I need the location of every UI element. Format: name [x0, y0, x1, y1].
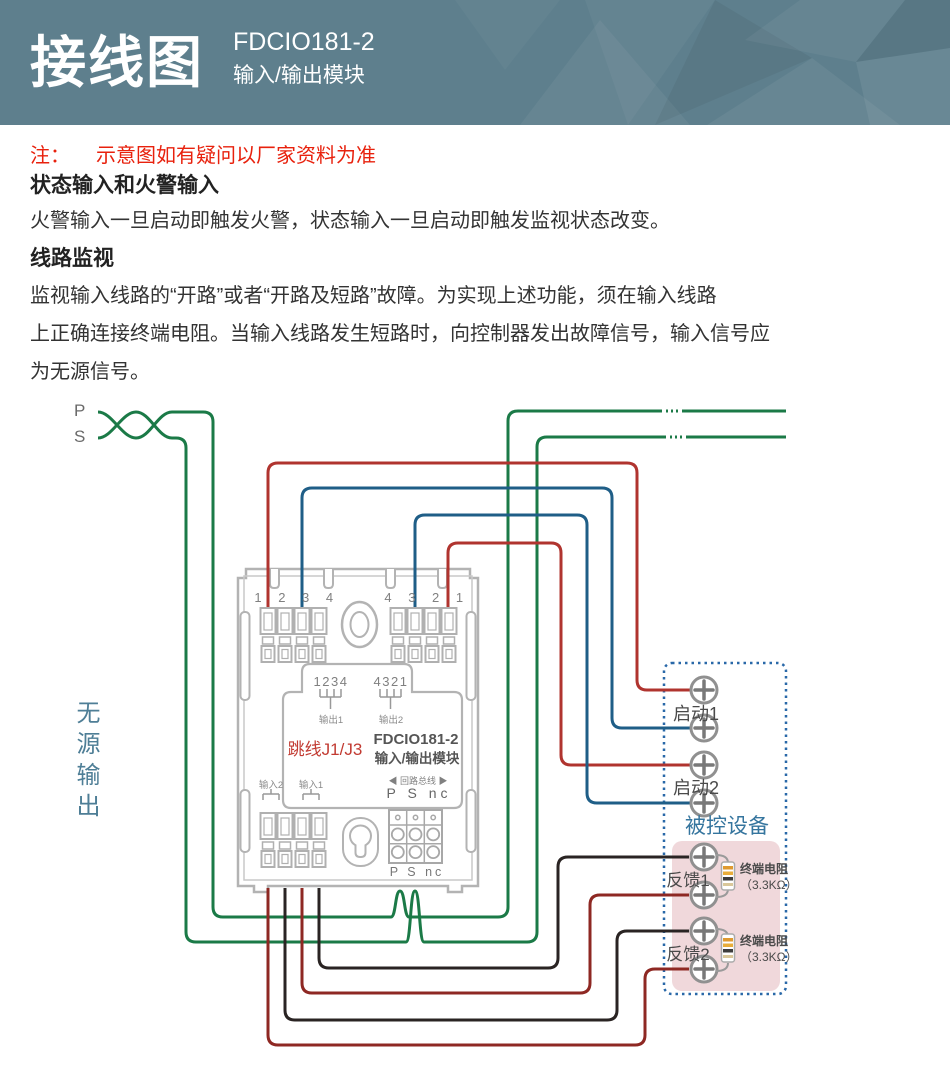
section2-line2: 上正确连接终端电阻。当输入线路发生短路时，向控制器发出故障信号，输入信号应 [30, 317, 770, 346]
disclaimer-note: 注：示意图如有疑问以厂家资料为准 [30, 139, 376, 168]
section1-title: 状态输入和火警输入 [30, 169, 219, 199]
loop-terminal-grid [389, 810, 442, 863]
top-right-terminal-numbers: 4 3 2 1 [384, 590, 469, 605]
start1-negative-wire [302, 488, 691, 728]
feedback2-label: 反馈2 [666, 940, 709, 965]
start1-positive-wire [268, 463, 691, 690]
section2-title: 线路监视 [30, 242, 114, 272]
feedback1-signal-wire [319, 857, 689, 968]
page-title: 接线图 [30, 18, 204, 99]
grid-terminal-labels: P S nc [390, 865, 445, 879]
start1-label: 启动1 [673, 700, 719, 726]
section2-line1: 监视输入线路的“开路”或者“开路及短路”故障。为实现上述功能，须在输入线路 [30, 279, 717, 308]
loop-bus-wires [98, 411, 786, 942]
start2-label: 启动2 [673, 774, 719, 800]
controlled-device-label: 被控设备 [685, 810, 769, 840]
input2-label: 输入2 [259, 777, 283, 791]
feedback1-return-wire [302, 888, 689, 993]
resistor1-value-label: （3.3KΩ） [740, 876, 798, 893]
output1-label: 输出1 [319, 712, 343, 726]
module-model-label: FDCIO181-2 [373, 731, 458, 748]
output2-label: 输出2 [379, 712, 403, 726]
section2-line3: 为无源信号。 [30, 355, 150, 384]
section1-body: 火警输入一旦启动即触发火警，状态输入一旦启动即触发监视状态改变。 [30, 204, 670, 233]
top-left-terminal-numbers: 1 2 3 4 [254, 590, 339, 605]
loop-p-label: P [74, 401, 85, 421]
passive-output-label: 无源输出 [68, 700, 103, 824]
start2-positive-wire [448, 543, 691, 765]
jumper-pins-right: 4321 [374, 674, 409, 689]
note-prefix: 注： [30, 145, 70, 167]
note-text: 示意图如有疑问以厂家资料为准 [96, 145, 376, 167]
loop-wire-s [98, 412, 786, 942]
resistor2-value-label: （3.3KΩ） [740, 948, 798, 965]
loop-s-label: S [74, 427, 85, 447]
resistor1-icon [722, 862, 735, 890]
input1-label: 输入1 [299, 777, 323, 791]
module-type-label: 输入/输出模块 [375, 747, 460, 767]
resistor1-name-label: 终端电阻 [740, 860, 788, 877]
resistor2-name-label: 终端电阻 [740, 932, 788, 949]
terminal-resistors [716, 855, 735, 971]
feedback2-signal-wire [285, 888, 689, 1020]
feedback-wires [268, 857, 689, 1045]
feedback1-label: 反馈1 [666, 866, 709, 891]
resistor2-icon [722, 934, 735, 962]
wiring-diagram-page: 接线图 FDCIO181-2 输入/输出模块 注：示意图如有疑问以厂家资料为准 … [0, 0, 950, 1083]
header-banner: 接线图 FDCIO181-2 输入/输出模块 [0, 0, 950, 125]
jumper-pins-left: 1234 [314, 674, 349, 689]
loop-terminal-labels: P S nc [387, 785, 452, 801]
header-module-type: 输入/输出模块 [233, 59, 365, 89]
feedback2-return-wire [268, 888, 689, 1045]
jumper-setting-label: 跳线J1/J3 [288, 735, 363, 760]
header-model-number: FDCIO181-2 [233, 28, 375, 57]
loop-wire-p [98, 411, 786, 917]
